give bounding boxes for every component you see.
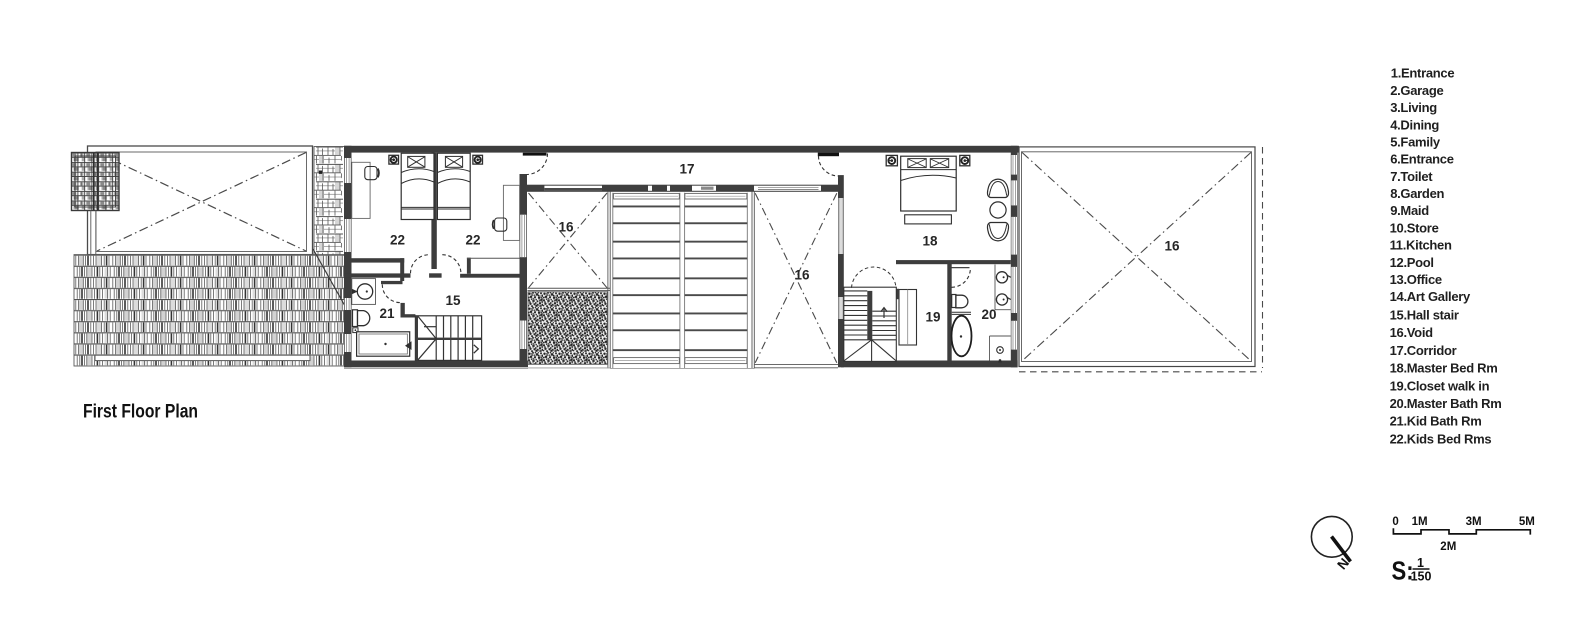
svg-text:20.Master Bath Rm: 20.Master Bath Rm xyxy=(1390,396,1502,411)
svg-text:12.Pool: 12.Pool xyxy=(1390,255,1434,270)
svg-text:2M: 2M xyxy=(1440,541,1456,553)
svg-text:18.Master Bed Rm: 18.Master Bed Rm xyxy=(1390,361,1498,376)
svg-text:5.Family: 5.Family xyxy=(1390,135,1441,150)
svg-text:1.Entrance: 1.Entrance xyxy=(1391,66,1455,81)
svg-text:3M: 3M xyxy=(1466,516,1482,528)
svg-text:19: 19 xyxy=(925,310,940,325)
svg-text:16.Void: 16.Void xyxy=(1390,325,1434,340)
svg-text:21.Kid Bath Rm: 21.Kid Bath Rm xyxy=(1390,414,1482,429)
svg-text:13.Office: 13.Office xyxy=(1390,272,1442,287)
svg-text:6.Entrance: 6.Entrance xyxy=(1390,152,1454,167)
svg-text:16: 16 xyxy=(794,268,810,283)
svg-text:4.Dining: 4.Dining xyxy=(1390,117,1439,132)
svg-text:10.Store: 10.Store xyxy=(1390,220,1439,235)
svg-text:16: 16 xyxy=(558,220,574,235)
svg-text:2.Garage: 2.Garage xyxy=(1390,83,1443,98)
svg-text:22.Kids Bed Rms: 22.Kids Bed Rms xyxy=(1390,431,1492,446)
svg-text:0: 0 xyxy=(1392,516,1398,528)
svg-text:17.Corridor: 17.Corridor xyxy=(1390,343,1457,358)
svg-text:18: 18 xyxy=(922,234,938,249)
svg-text:11.Kitchen: 11.Kitchen xyxy=(1390,238,1452,253)
svg-text:1: 1 xyxy=(1417,556,1424,570)
svg-text:21: 21 xyxy=(379,306,395,321)
svg-text:22: 22 xyxy=(390,233,405,248)
svg-text:3.Living: 3.Living xyxy=(1390,100,1437,115)
svg-text:5M: 5M xyxy=(1519,516,1535,528)
svg-text:9.Maid: 9.Maid xyxy=(1390,203,1429,218)
svg-text:150: 150 xyxy=(1411,570,1432,584)
svg-text:First Floor Plan: First Floor Plan xyxy=(83,401,198,423)
svg-text:22: 22 xyxy=(465,233,480,248)
svg-text:19.Closet walk in: 19.Closet walk in xyxy=(1390,378,1490,393)
svg-text:20: 20 xyxy=(981,307,996,322)
svg-text:7.Toilet: 7.Toilet xyxy=(1390,169,1433,184)
svg-text:8.Garden: 8.Garden xyxy=(1390,186,1444,201)
svg-text:14.Art Gallery: 14.Art Gallery xyxy=(1390,289,1471,304)
svg-text:17: 17 xyxy=(679,162,694,177)
svg-text:1M: 1M xyxy=(1412,516,1428,528)
svg-text:16: 16 xyxy=(1164,239,1180,254)
svg-text:15.Hall stair: 15.Hall stair xyxy=(1390,308,1459,323)
svg-text:15: 15 xyxy=(445,293,461,308)
